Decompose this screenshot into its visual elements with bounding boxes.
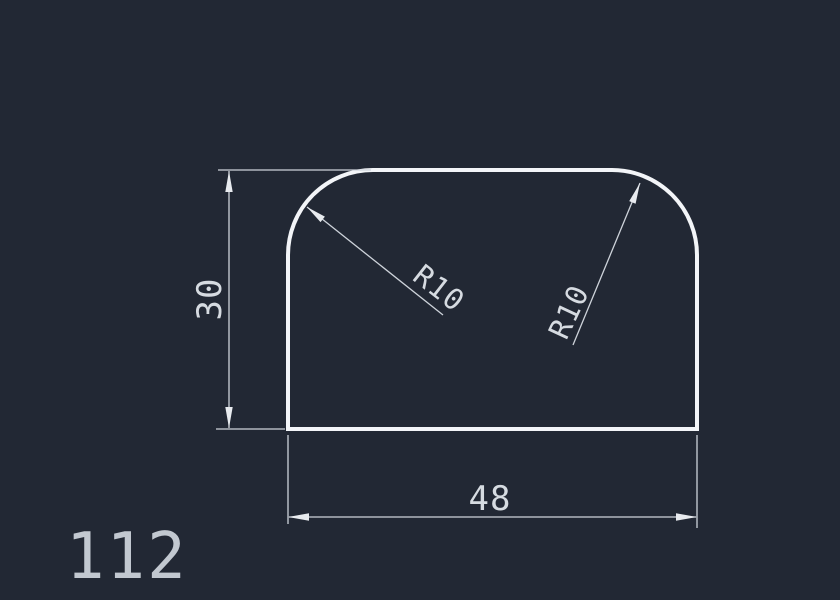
drawing-number: 112 — [66, 520, 188, 594]
drawing-canvas: 30 48 R10 R10 112 — [0, 0, 840, 600]
canvas-background — [0, 0, 840, 600]
height-dimension-label: 30 — [190, 278, 230, 321]
cad-drawing-viewport: 30 48 R10 R10 112 — [0, 0, 840, 600]
width-dimension-label: 48 — [469, 479, 512, 519]
